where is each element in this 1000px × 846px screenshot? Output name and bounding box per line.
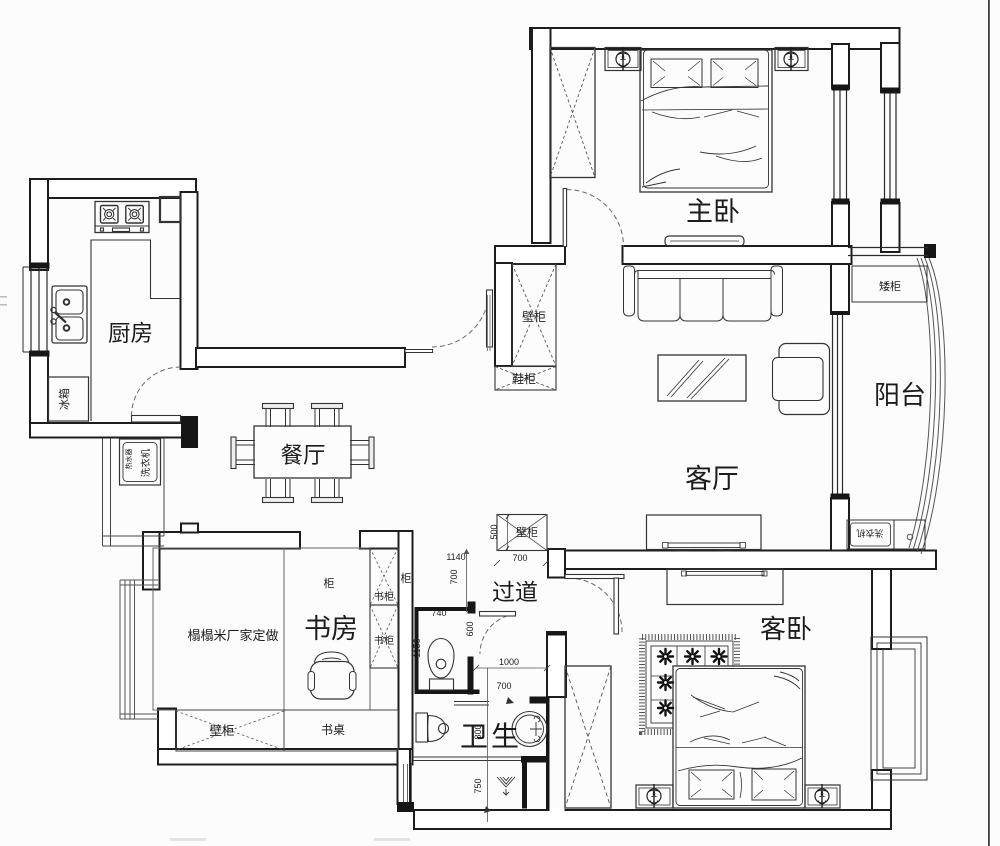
- svg-text:500: 500: [489, 524, 499, 539]
- svg-text:书桌: 书桌: [321, 723, 345, 737]
- svg-text:鞋柜: 鞋柜: [512, 371, 536, 386]
- svg-text:热水器: 热水器: [124, 449, 133, 470]
- svg-text:600: 600: [465, 621, 475, 636]
- svg-text:书柜: 书柜: [374, 634, 394, 647]
- svg-text:客卧: 客卧: [760, 614, 812, 644]
- svg-text:壁柜: 壁柜: [522, 309, 546, 324]
- svg-text:餐厅: 餐厅: [280, 443, 325, 468]
- svg-text:矮柜: 矮柜: [879, 279, 901, 293]
- svg-text:柜: 柜: [324, 577, 335, 590]
- svg-text:洗衣机: 洗衣机: [856, 528, 883, 539]
- svg-text:壁柜: 壁柜: [209, 723, 234, 738]
- svg-text:冰箱: 冰箱: [57, 388, 71, 410]
- svg-text:壁柜: 壁柜: [516, 525, 538, 539]
- svg-text:厨房: 厨房: [108, 321, 153, 346]
- svg-text:过道: 过道: [492, 579, 538, 605]
- svg-text:700: 700: [512, 553, 527, 563]
- svg-text:800: 800: [473, 724, 483, 739]
- svg-text:榻榻米厂家定做: 榻榻米厂家定做: [187, 628, 278, 643]
- svg-text:柜: 柜: [401, 572, 412, 585]
- svg-text:洗衣机: 洗衣机: [140, 448, 152, 477]
- svg-text:750: 750: [473, 778, 483, 793]
- svg-text:700: 700: [449, 569, 459, 584]
- svg-text:生: 生: [491, 721, 519, 752]
- svg-text:阳台: 阳台: [874, 380, 926, 410]
- svg-text:1140: 1140: [446, 552, 465, 562]
- svg-text:主卧: 主卧: [686, 197, 740, 227]
- svg-text:700: 700: [496, 681, 511, 691]
- svg-text:书柜: 书柜: [374, 590, 394, 603]
- svg-text:740: 740: [431, 608, 446, 618]
- svg-text:书房: 书房: [304, 614, 358, 644]
- svg-text:客厅: 客厅: [685, 464, 739, 494]
- svg-text:1000: 1000: [499, 657, 519, 667]
- svg-text:1150: 1150: [412, 638, 422, 657]
